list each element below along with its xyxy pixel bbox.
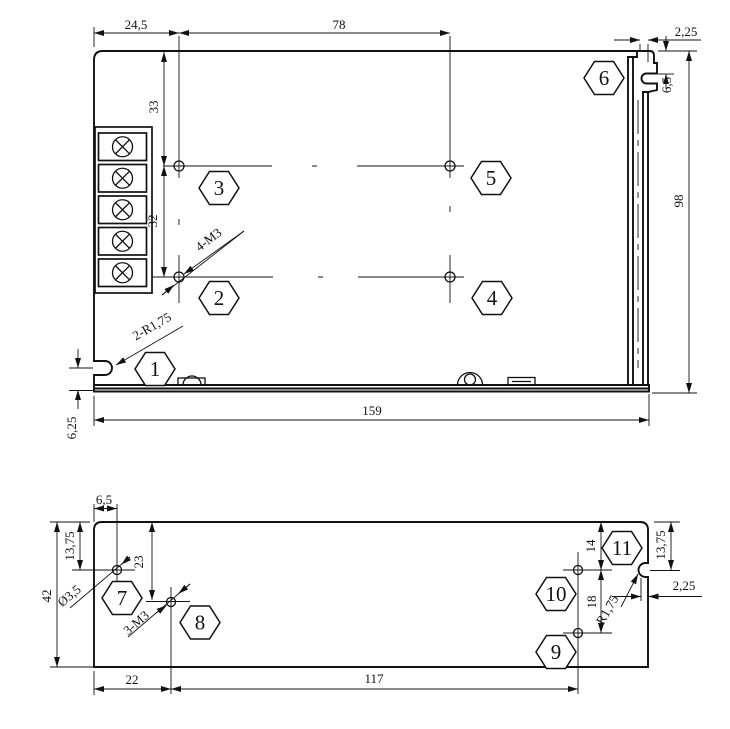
callout-number: 9 [551, 640, 562, 664]
dimension-text: 13,75 [62, 531, 77, 560]
dimension-text: 33 [146, 101, 161, 114]
dimension-text: 24,5 [125, 17, 148, 32]
callout-number: 8 [195, 611, 206, 635]
background [0, 0, 730, 729]
dimension-text: 14 [583, 539, 598, 553]
callout-number: 3 [214, 176, 225, 200]
dimension-text: 32 [145, 215, 160, 228]
callout-number: 1 [150, 357, 161, 381]
dimension-text: 13,75 [653, 530, 668, 559]
callout-number: 4 [487, 286, 498, 310]
callout-number: 2 [214, 286, 225, 310]
dimension-text: 78 [333, 17, 346, 32]
dimension-text: 98 [671, 195, 686, 208]
callout-number: 10 [546, 582, 567, 606]
dimension-text: 159 [362, 403, 382, 418]
technical-drawing: 24,5 78 33 32 2,25 6,5 98 [0, 0, 730, 729]
dimension-text: 42 [39, 590, 54, 603]
dimension-text: 18 [584, 596, 599, 609]
dimension-text: 23 [131, 556, 146, 569]
callout-number: 7 [117, 586, 128, 610]
dimension-text: 22 [126, 672, 139, 687]
dimension-text: 2,25 [673, 578, 696, 593]
callout-number: 5 [486, 166, 497, 190]
dimension-text: 6,25 [64, 417, 79, 440]
callout-number: 6 [599, 66, 610, 90]
dimension-text: 6,5 [659, 77, 674, 93]
dimension-text: 2,25 [675, 24, 698, 39]
dimension-text: 6,5 [96, 492, 112, 507]
drawing-canvas: 24,5 78 33 32 2,25 6,5 98 [0, 0, 730, 729]
dimension-text: 117 [364, 671, 384, 686]
callout-number: 11 [612, 536, 632, 560]
